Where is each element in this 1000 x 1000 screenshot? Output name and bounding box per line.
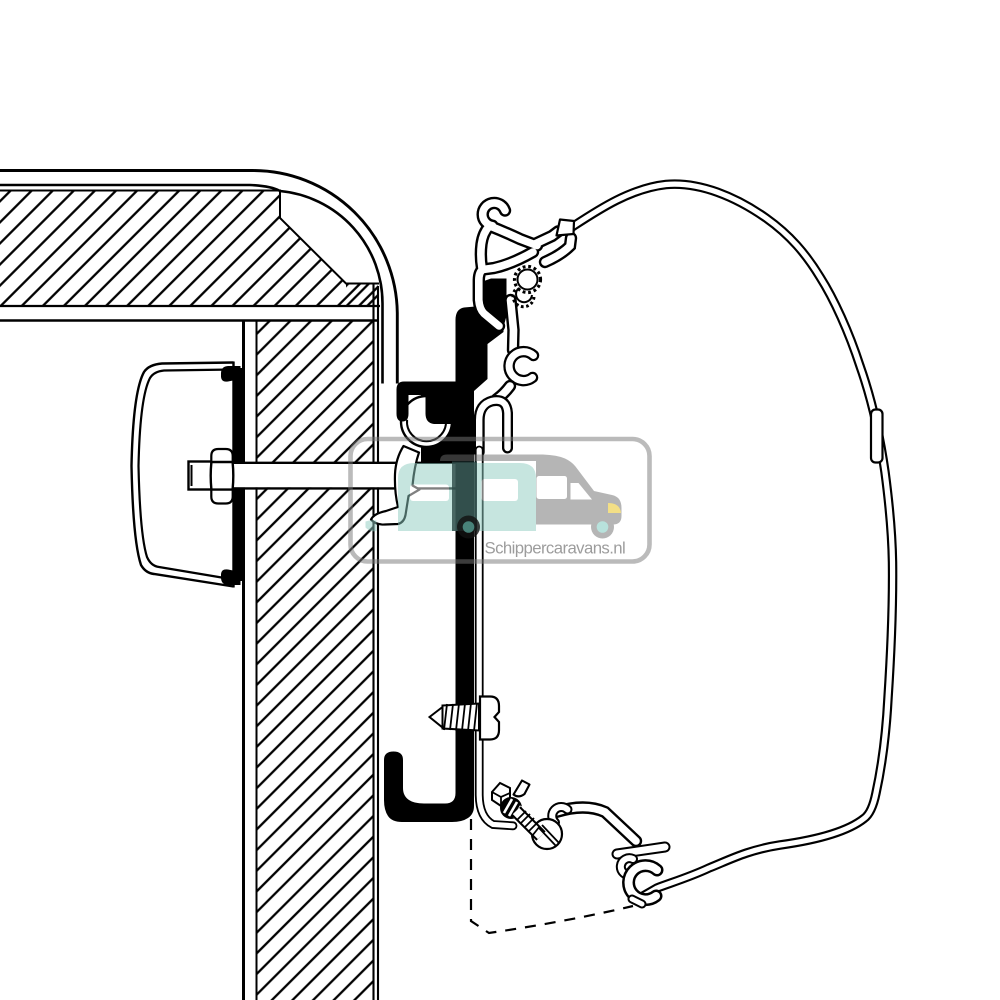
svg-text:Schippercaravans.nl: Schippercaravans.nl [485, 539, 626, 558]
